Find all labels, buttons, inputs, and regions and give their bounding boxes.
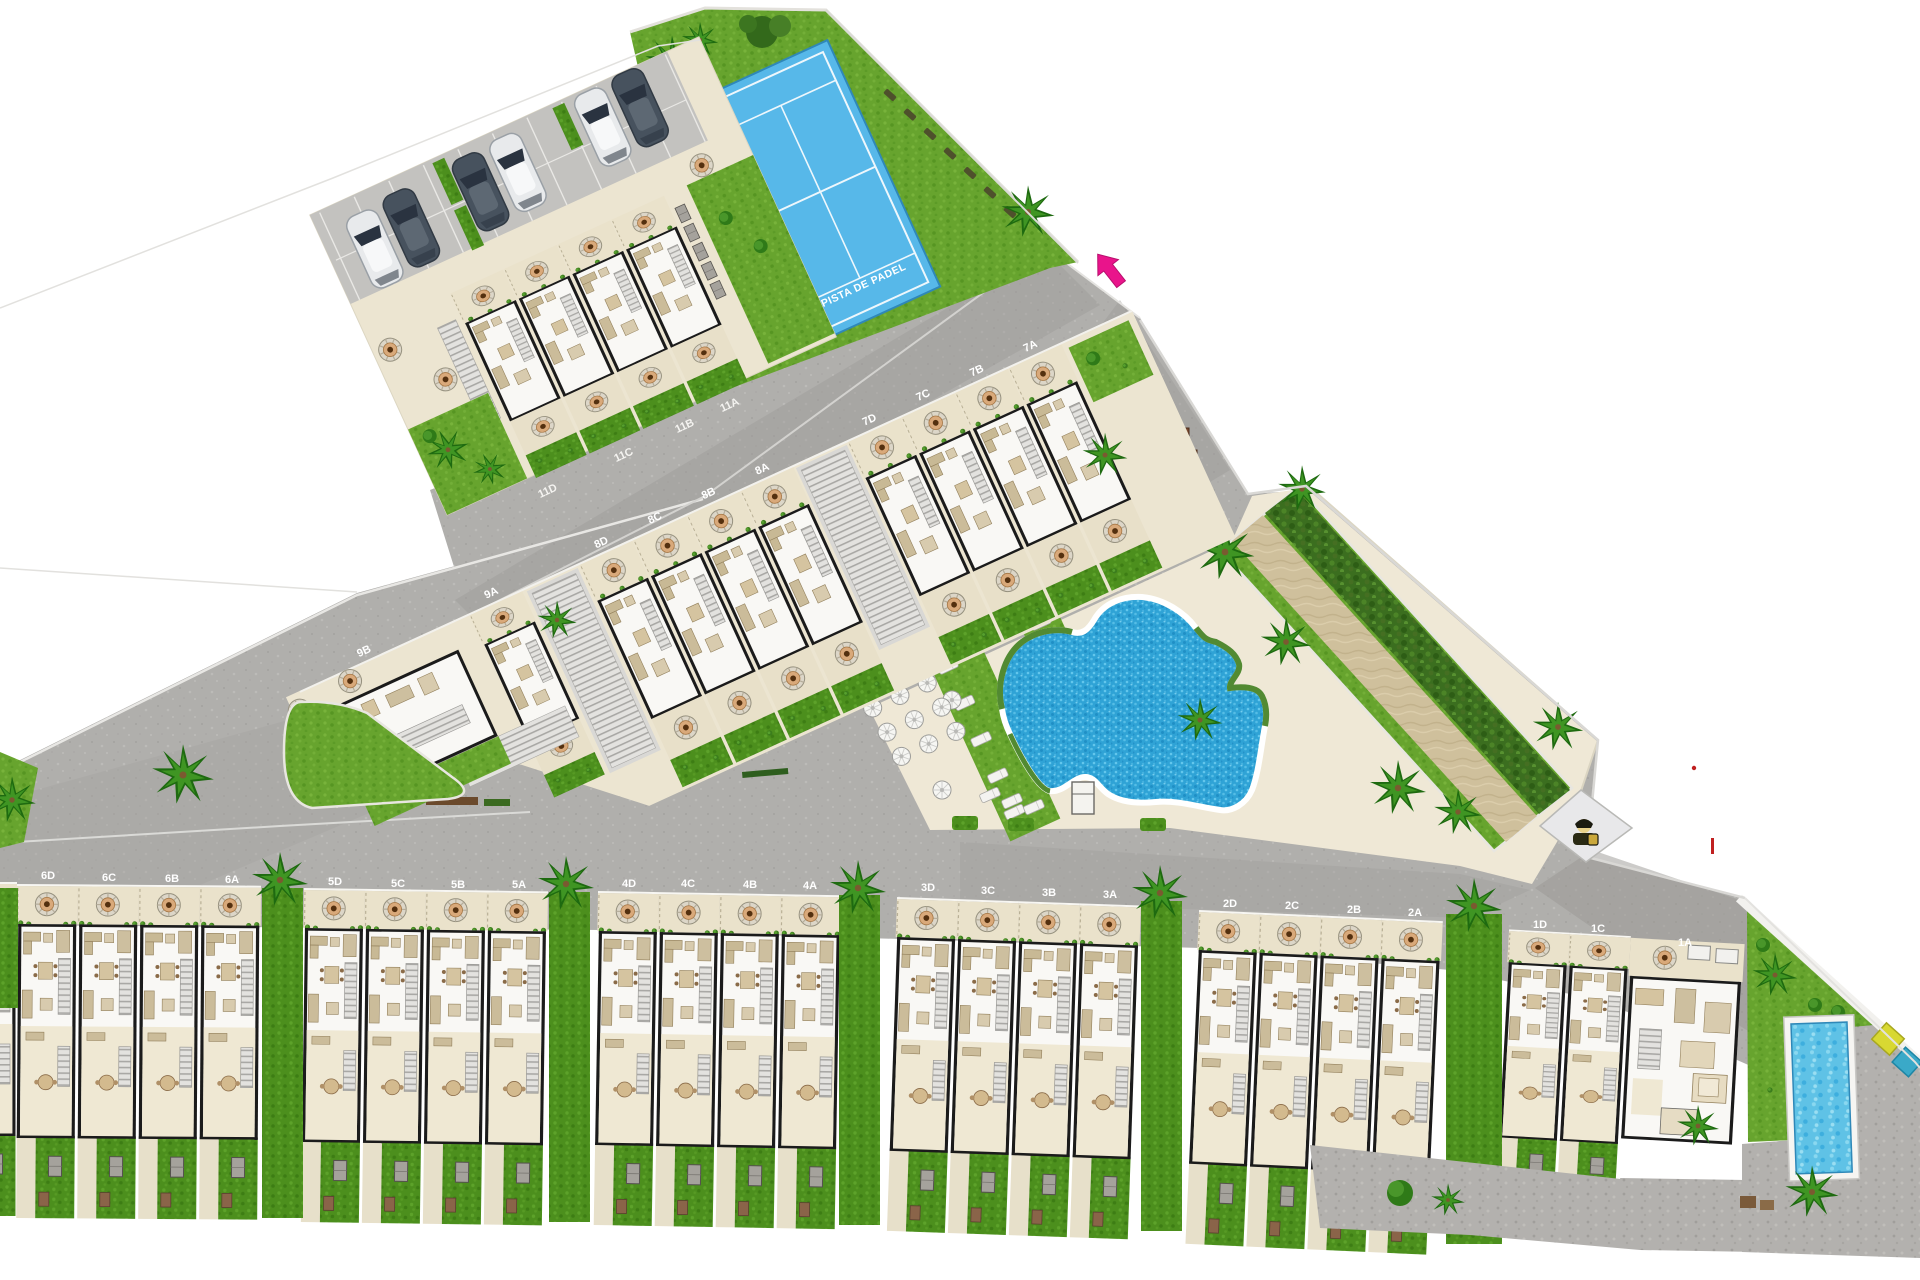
- svg-text:5B: 5B: [451, 879, 465, 891]
- svg-text:3B: 3B: [1042, 887, 1056, 899]
- svg-text:3A: 3A: [1103, 889, 1117, 901]
- svg-text:5A: 5A: [512, 879, 526, 891]
- svg-text:1A: 1A: [1678, 937, 1692, 949]
- svg-text:3C: 3C: [981, 885, 995, 897]
- svg-text:1C: 1C: [1591, 923, 1605, 935]
- svg-text:3D: 3D: [921, 882, 935, 894]
- svg-text:6A: 6A: [225, 874, 239, 886]
- svg-text:2D: 2D: [1223, 898, 1237, 910]
- svg-text:1D: 1D: [1533, 919, 1547, 931]
- svg-text:2A: 2A: [1408, 907, 1422, 919]
- svg-text:6B: 6B: [165, 873, 179, 885]
- svg-text:2B: 2B: [1347, 904, 1361, 916]
- svg-text:2C: 2C: [1285, 900, 1299, 912]
- svg-text:4A: 4A: [803, 880, 817, 892]
- svg-text:5C: 5C: [391, 878, 405, 890]
- svg-text:6C: 6C: [102, 872, 116, 884]
- svg-text:4C: 4C: [681, 878, 695, 890]
- svg-text:4D: 4D: [622, 878, 636, 890]
- svg-text:5D: 5D: [328, 876, 342, 888]
- svg-text:6D: 6D: [41, 870, 55, 882]
- svg-text:4B: 4B: [743, 879, 757, 891]
